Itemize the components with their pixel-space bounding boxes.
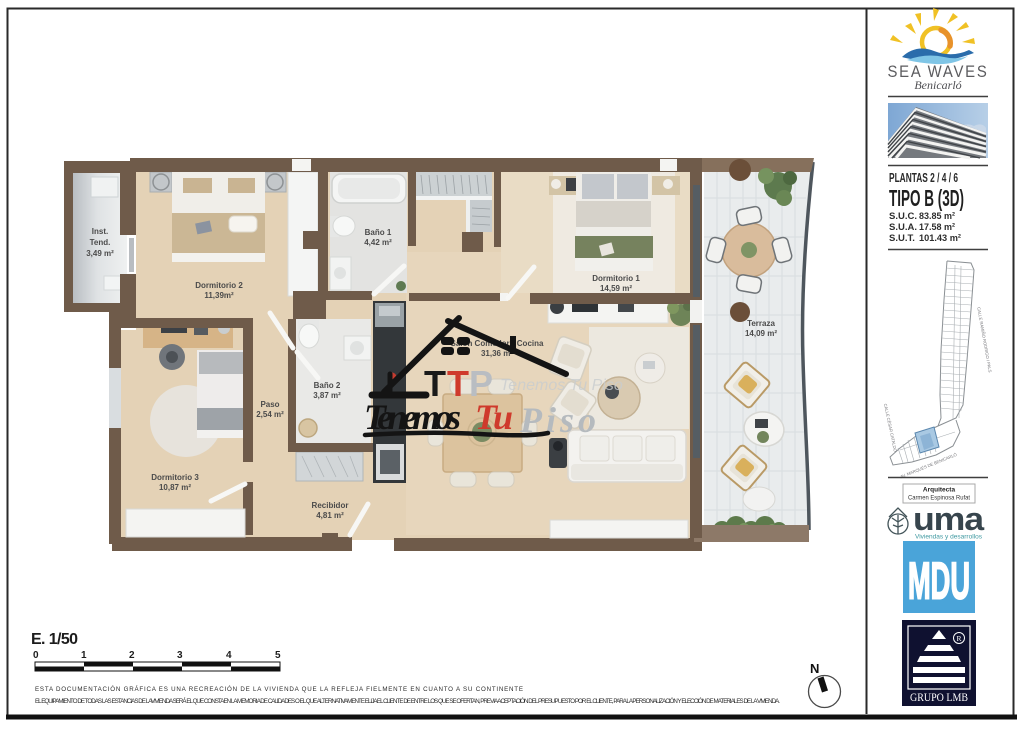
svg-text:uma: uma bbox=[913, 501, 984, 537]
svg-text:3,87 m²: 3,87 m² bbox=[313, 391, 341, 400]
svg-text:4,42 m²: 4,42 m² bbox=[364, 238, 392, 247]
svg-text:3,49 m²: 3,49 m² bbox=[86, 249, 114, 258]
svg-text:0: 0 bbox=[33, 650, 39, 661]
svg-text:2: 2 bbox=[129, 650, 135, 661]
svg-text:E. 1/50: E. 1/50 bbox=[31, 631, 78, 648]
svg-text:Inst.: Inst. bbox=[92, 227, 108, 236]
svg-text:Terraza: Terraza bbox=[747, 319, 775, 328]
svg-text:PLANTAS 2 / 4 / 6: PLANTAS 2 / 4 / 6 bbox=[889, 171, 958, 185]
svg-text:ESTA DOCUMENTACIÓN GRÁFICA ES: ESTA DOCUMENTACIÓN GRÁFICA ES UNA RECREA… bbox=[35, 686, 523, 693]
svg-text:4: 4 bbox=[226, 650, 232, 661]
svg-text:1: 1 bbox=[81, 650, 87, 661]
svg-text:14,09 m²: 14,09 m² bbox=[745, 329, 777, 338]
svg-text:11,39m²: 11,39m² bbox=[204, 291, 234, 300]
svg-text:MDU: MDU bbox=[908, 552, 970, 610]
svg-text:N: N bbox=[810, 661, 819, 676]
svg-text:TIPO B (3D): TIPO B (3D) bbox=[889, 185, 964, 211]
svg-text:Baño 2: Baño 2 bbox=[314, 381, 341, 390]
svg-text:S.U.A.: S.U.A. bbox=[889, 222, 917, 233]
svg-text:EL EQUIPAMIENTO DE TODAS LAS E: EL EQUIPAMIENTO DE TODAS LAS ESTANCIAS D… bbox=[35, 698, 780, 705]
svg-text:83.85 m²: 83.85 m² bbox=[919, 211, 955, 222]
svg-text:Benicarló: Benicarló bbox=[914, 78, 961, 92]
svg-text:Dormitorio 1: Dormitorio 1 bbox=[592, 274, 640, 283]
svg-text:GRUPO LMB: GRUPO LMB bbox=[910, 690, 968, 704]
svg-text:10,87 m²: 10,87 m² bbox=[159, 483, 191, 492]
svg-text:R: R bbox=[956, 634, 961, 643]
svg-text:Tenemos Tu Piso: Tenemos Tu Piso bbox=[500, 377, 623, 394]
svg-text:Baño 1: Baño 1 bbox=[365, 228, 392, 237]
svg-text:Arquitecta: Arquitecta bbox=[923, 487, 956, 494]
svg-text:17.58 m²: 17.58 m² bbox=[919, 222, 955, 233]
svg-text:Paso: Paso bbox=[260, 400, 279, 409]
svg-text:14,59 m²: 14,59 m² bbox=[600, 284, 632, 293]
svg-text:Dormitorio 2: Dormitorio 2 bbox=[195, 281, 243, 290]
svg-text:S.U.C.: S.U.C. bbox=[889, 211, 917, 222]
svg-text:Dormitorio 3: Dormitorio 3 bbox=[151, 473, 199, 482]
svg-text:2,54 m²: 2,54 m² bbox=[256, 410, 284, 419]
svg-text:S.U.T.: S.U.T. bbox=[889, 233, 915, 244]
svg-text:Recibidor: Recibidor bbox=[312, 501, 349, 510]
svg-text:4,81 m²: 4,81 m² bbox=[316, 511, 344, 520]
svg-text:Tu: Tu bbox=[475, 397, 513, 437]
svg-text:Tend.: Tend. bbox=[90, 238, 111, 247]
svg-text:Viviendas y desarrollos: Viviendas y desarrollos bbox=[915, 534, 982, 541]
svg-text:5: 5 bbox=[275, 650, 281, 661]
svg-text:101.43 m²: 101.43 m² bbox=[919, 233, 961, 244]
svg-text:3: 3 bbox=[177, 650, 183, 661]
